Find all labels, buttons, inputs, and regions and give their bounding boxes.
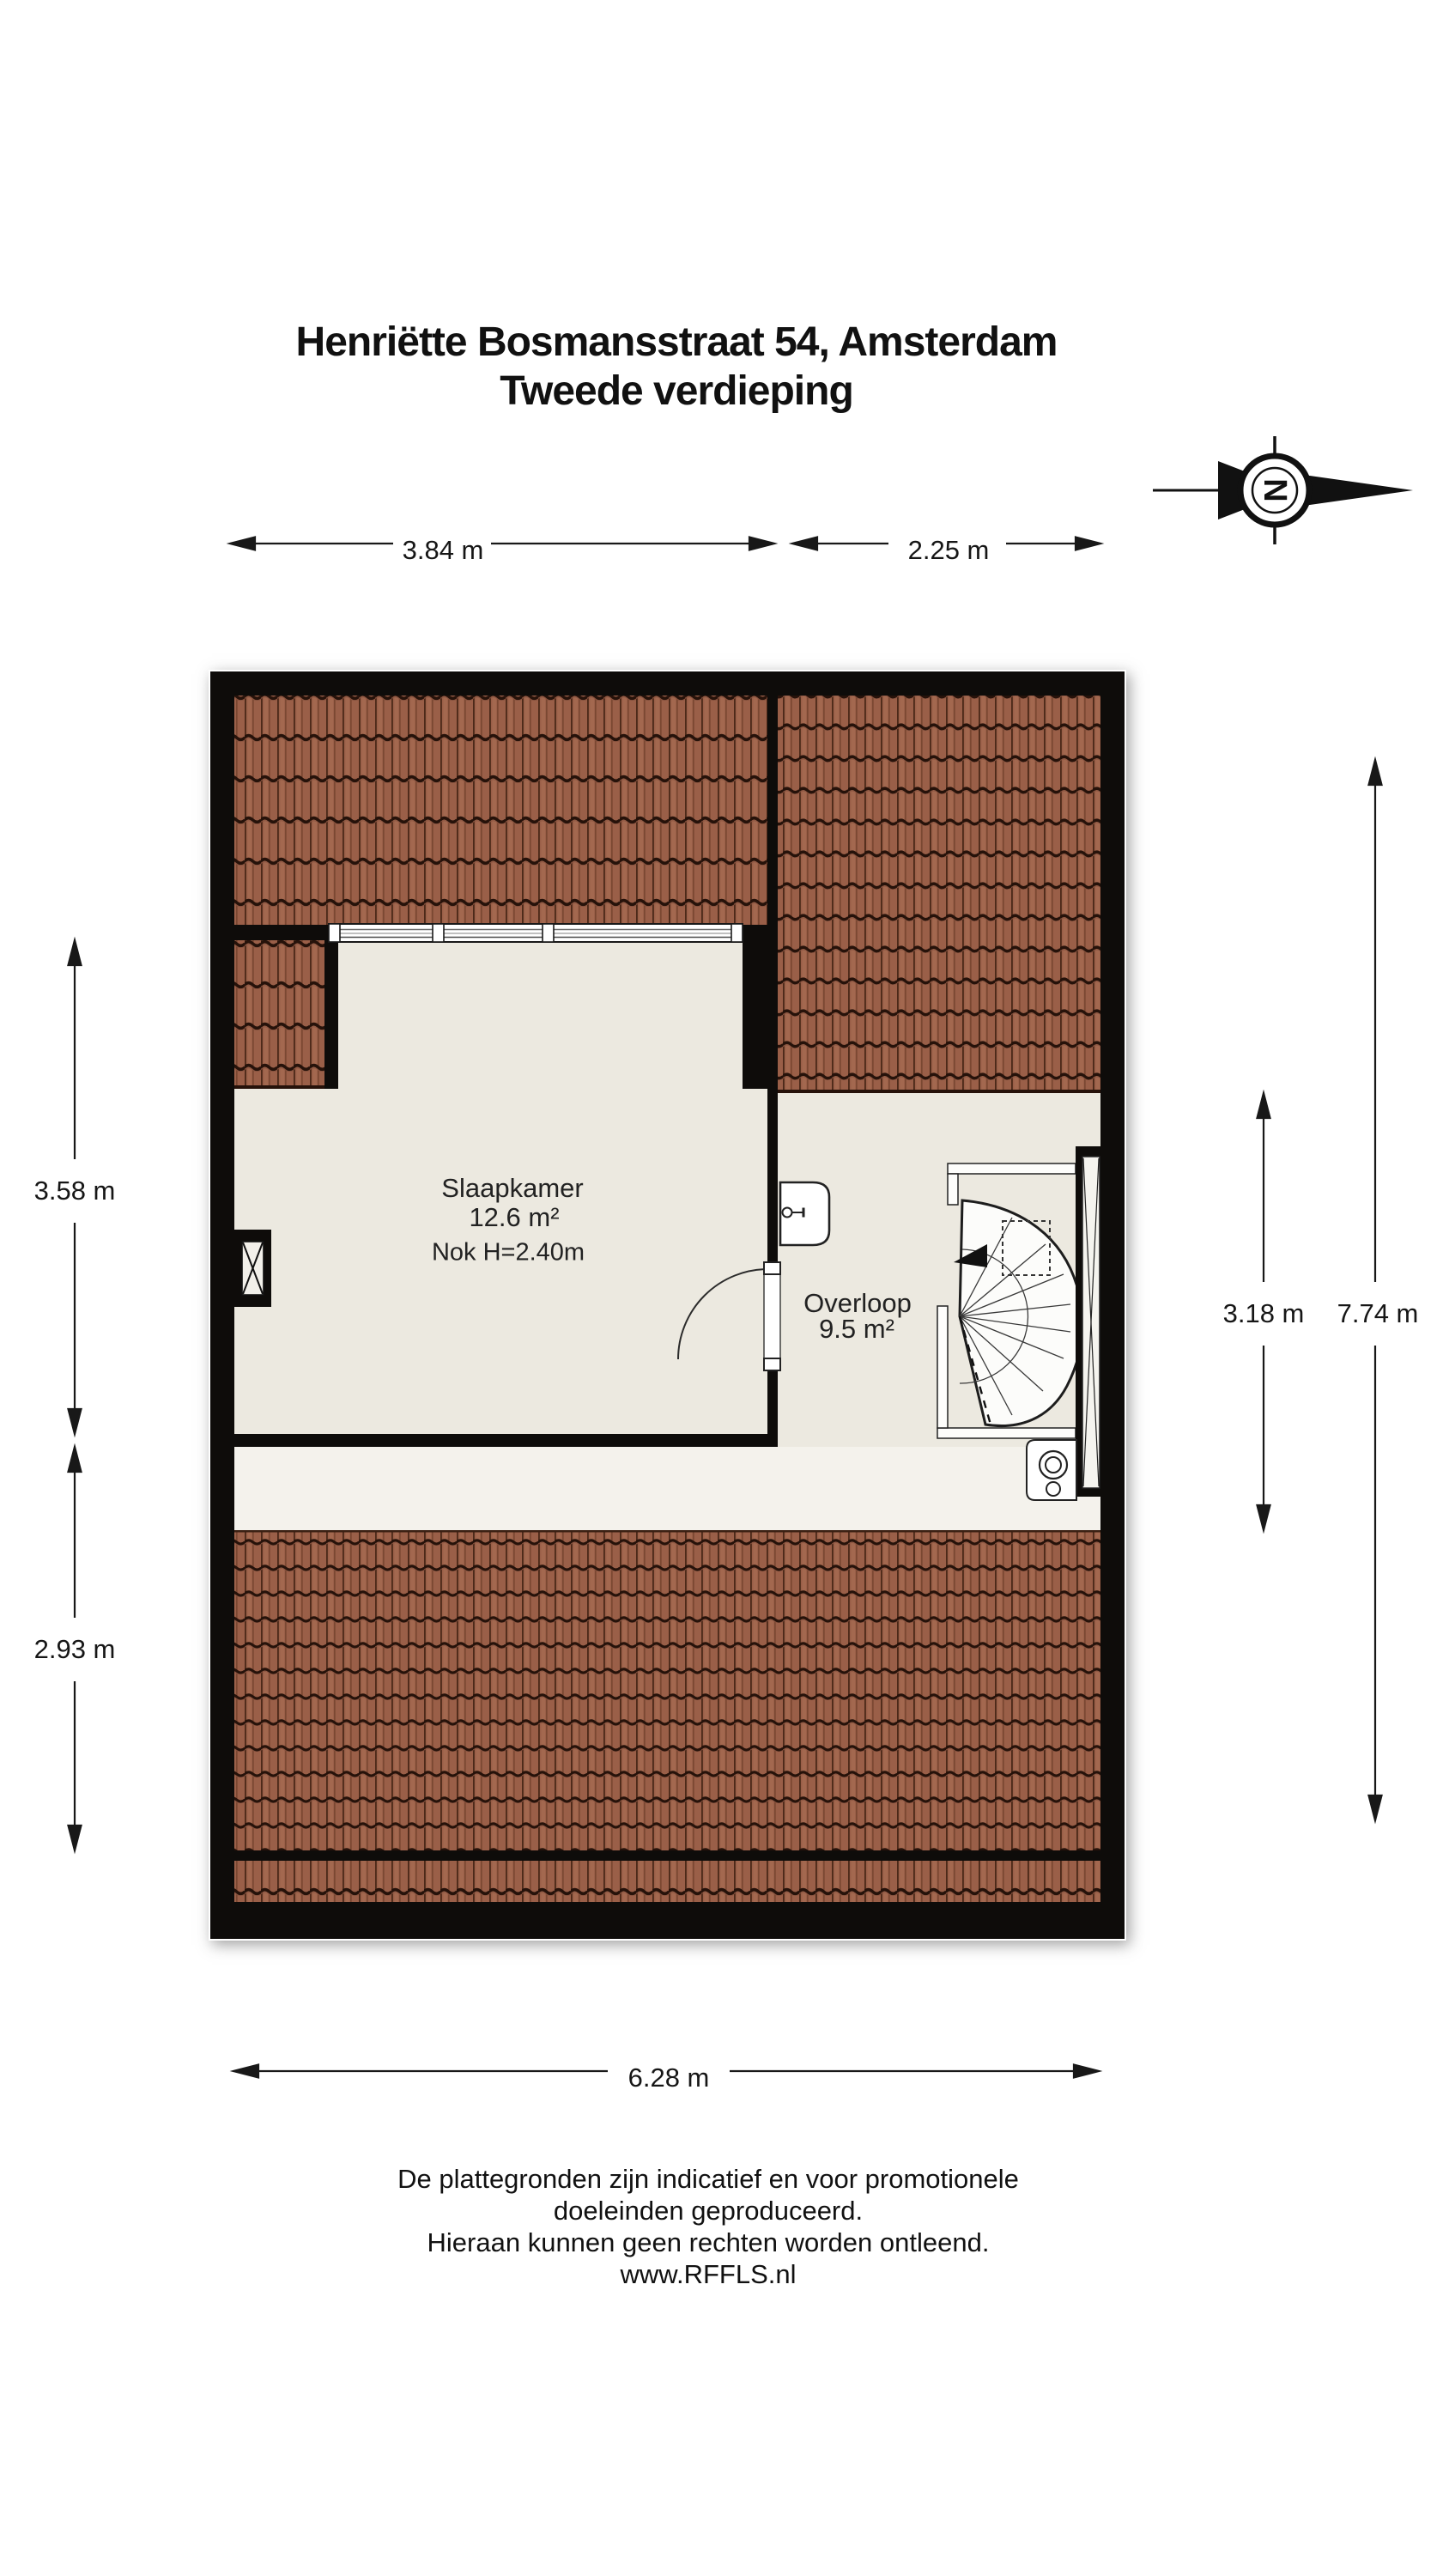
tap-icon xyxy=(783,1208,792,1218)
boiler xyxy=(1027,1440,1076,1500)
stair-wall-top xyxy=(948,1163,1076,1174)
disclaimer-url: www.RFFLS.nl xyxy=(338,2258,1079,2290)
disclaimer: De plattegronden zijn indicatief en voor… xyxy=(338,2163,1079,2290)
dimension-bottom: 6.28 m xyxy=(628,2063,710,2093)
stair-wall-bottom xyxy=(937,1428,1076,1438)
title-line2: Tweede verdieping xyxy=(296,367,1058,416)
disclaimer-line1: De plattegronden zijn indicatief en voor… xyxy=(338,2163,1079,2227)
roof-top-left xyxy=(234,696,767,925)
skylight-window xyxy=(234,1230,271,1307)
low-headroom-band xyxy=(234,1447,1100,1530)
roof-left-patch xyxy=(234,940,324,1089)
north-arrow-icon: N xyxy=(1153,436,1413,544)
overloop-area: 9.5 m² xyxy=(819,1314,894,1345)
washbasin xyxy=(780,1182,829,1245)
dimension-top-left: 3.84 m xyxy=(403,535,484,566)
divider-wall xyxy=(743,925,778,1089)
door-frame xyxy=(764,1262,780,1370)
page-title: Henriëtte Bosmansstraat 54, Amsterdam Tw… xyxy=(296,318,1058,416)
slaapkamer-label: Slaapkamer xyxy=(441,1173,583,1204)
slaapkamer-note: Nok H=2.40m xyxy=(432,1239,585,1267)
disclaimer-line2: Hieraan kunnen geen rechten worden ontle… xyxy=(338,2227,1079,2258)
dormer-window xyxy=(329,924,743,942)
roof-bottom-strip xyxy=(234,1861,1100,1902)
dimension-top-right: 2.25 m xyxy=(908,535,990,566)
slaapkamer-area: 12.6 m² xyxy=(469,1202,559,1233)
title-line1: Henriëtte Bosmansstraat 54, Amsterdam xyxy=(296,318,1058,367)
roof-bottom xyxy=(234,1530,1100,1850)
dimension-right-outer: 7.74 m xyxy=(1337,1298,1419,1329)
stair-window xyxy=(1076,1146,1100,1497)
dimension-left-lower: 2.93 m xyxy=(34,1634,116,1665)
roof-top-right xyxy=(778,696,1100,1093)
compass-letter: N xyxy=(1257,478,1293,501)
dimension-right-inner: 3.18 m xyxy=(1223,1298,1305,1329)
dimension-left-upper: 3.58 m xyxy=(34,1176,116,1206)
